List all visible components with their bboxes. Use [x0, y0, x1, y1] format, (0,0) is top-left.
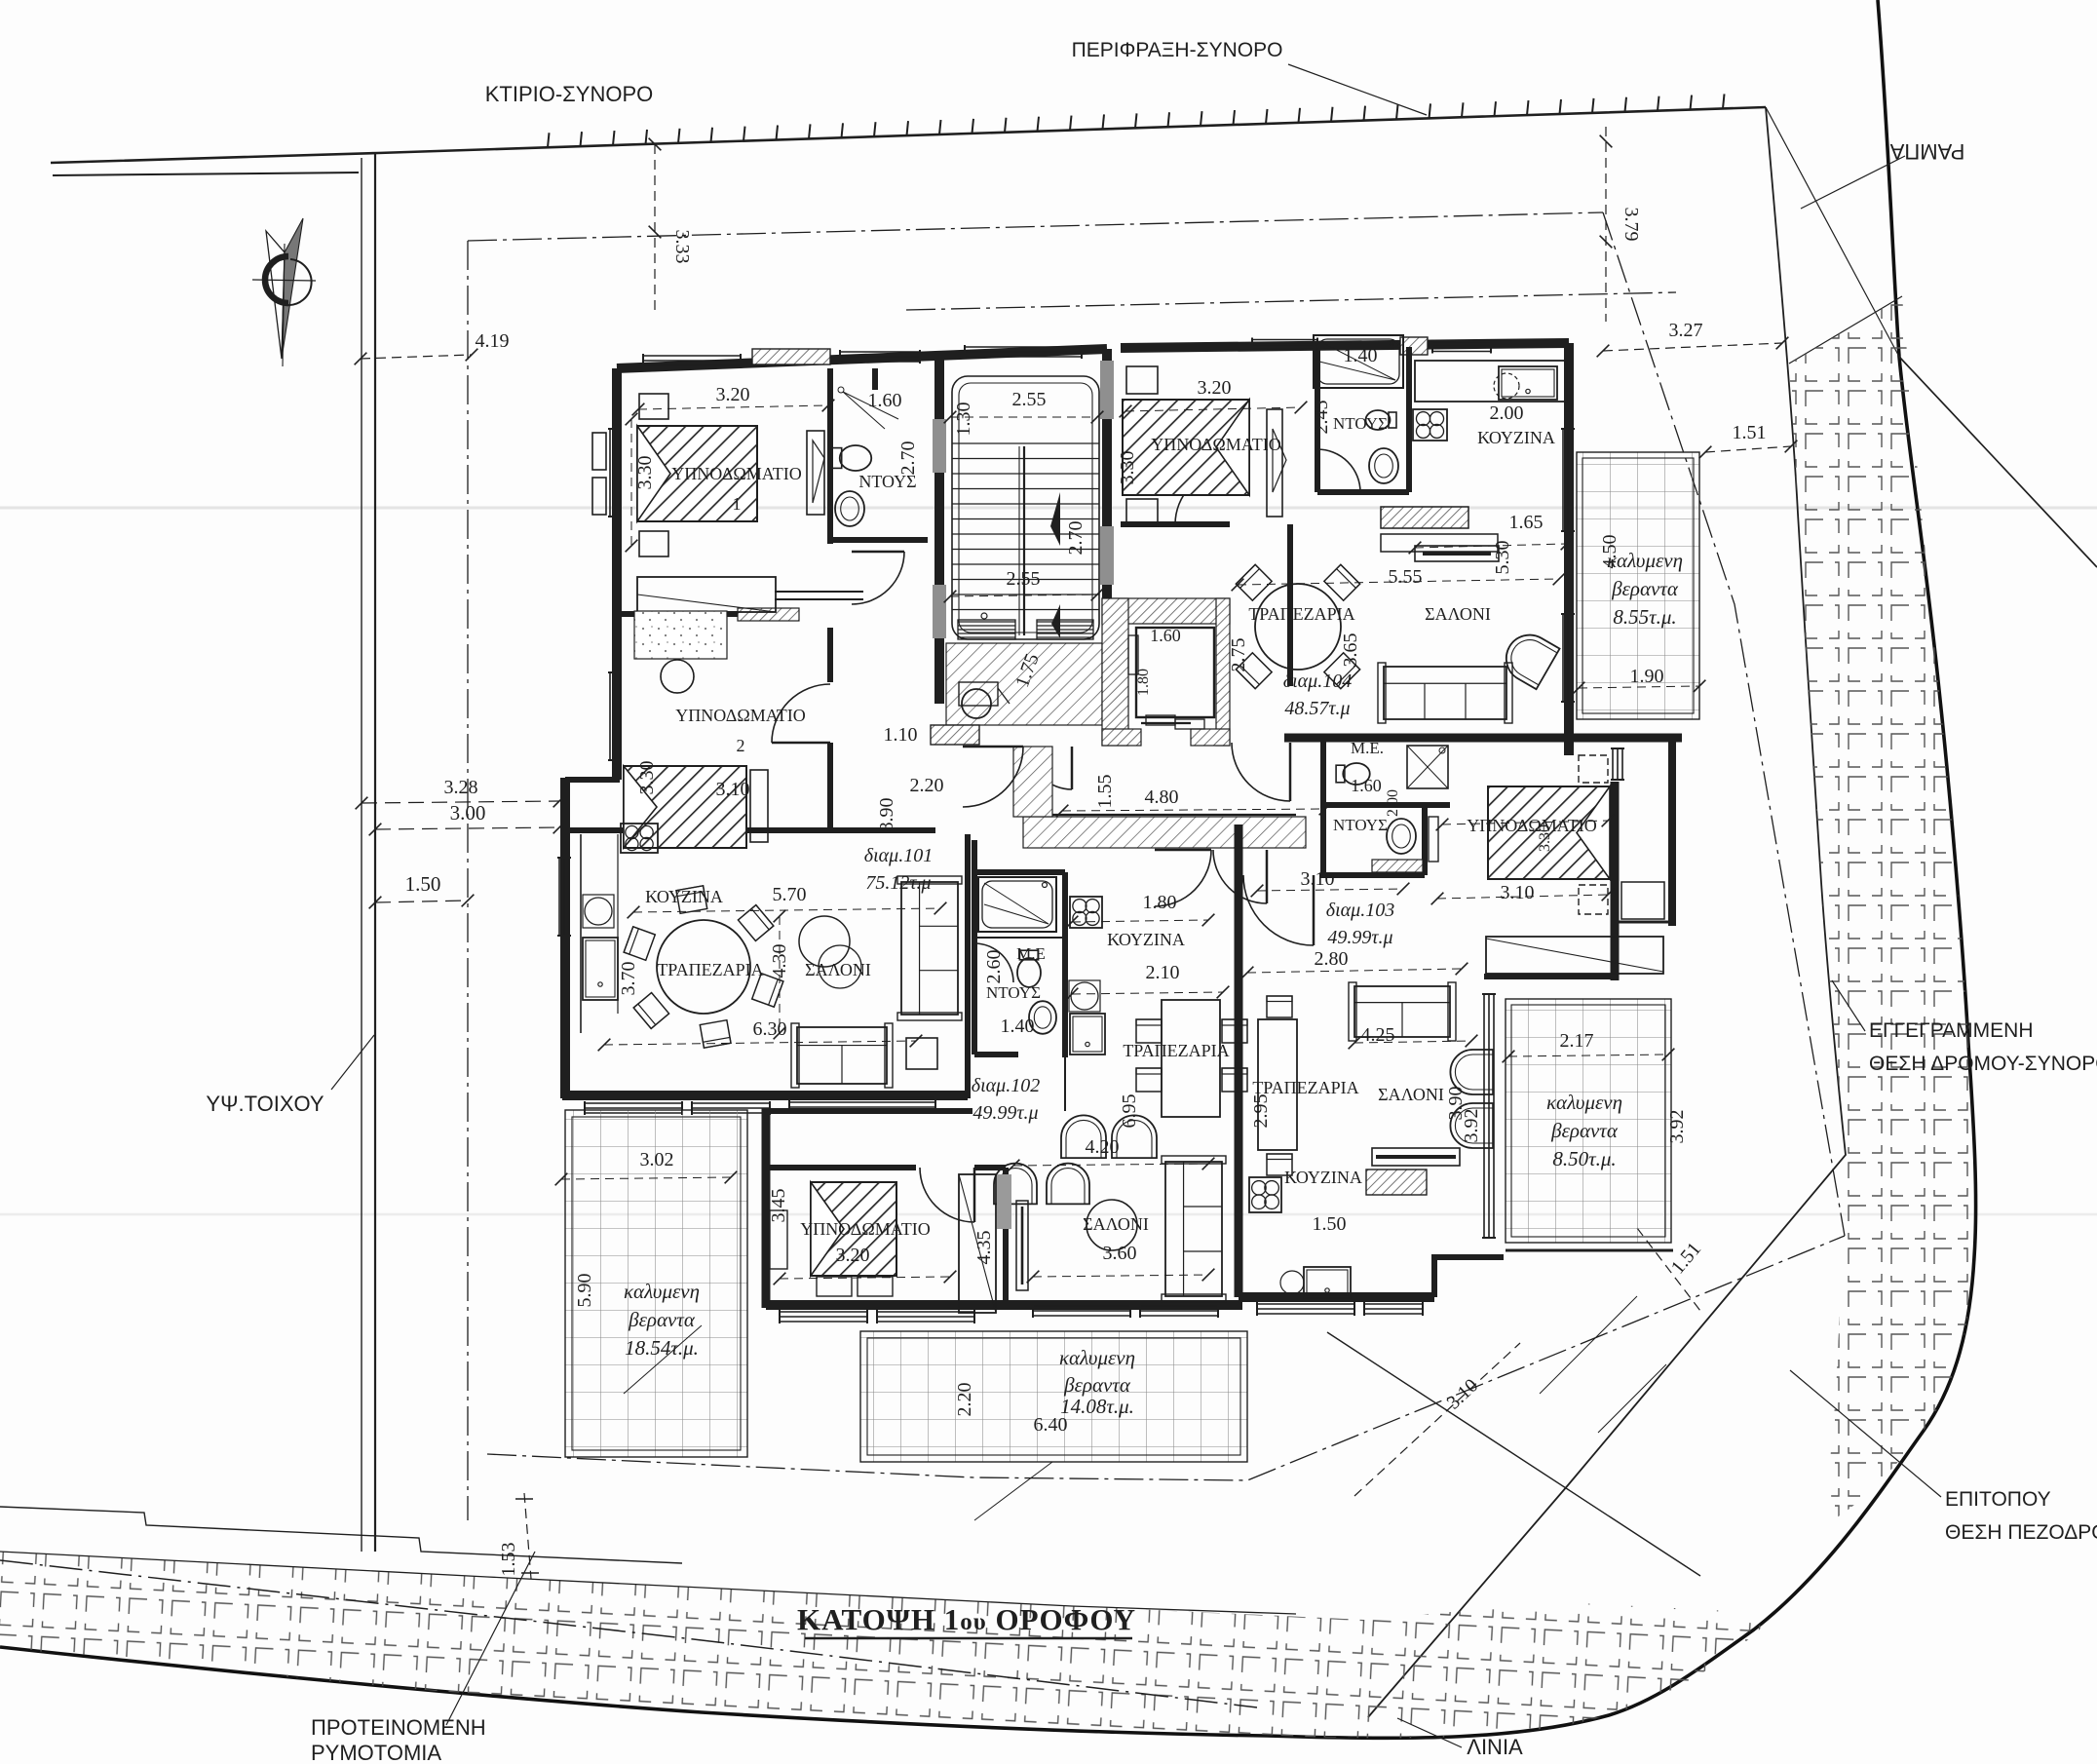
- svg-text:ΥΠΝΟΔΩΜΑΤΙΟ: ΥΠΝΟΔΩΜΑΤΙΟ: [675, 706, 806, 725]
- svg-text:1.80: 1.80: [1135, 669, 1152, 696]
- svg-text:Μ.Ε.: Μ.Ε.: [1351, 739, 1384, 757]
- svg-text:καλυμενη: καλυμενη: [1607, 549, 1683, 572]
- svg-text:3.45: 3.45: [768, 1189, 789, 1223]
- svg-text:75.12τ.μ: 75.12τ.μ: [865, 872, 931, 894]
- svg-text:2.70: 2.70: [897, 441, 919, 476]
- svg-text:βεραντα: βεραντα: [1550, 1119, 1619, 1142]
- svg-text:ΘΕΣΗ ΠΕΖΟΔΡΟ: ΘΕΣΗ ΠΕΖΟΔΡΟ: [1945, 1521, 2097, 1544]
- svg-text:3.20: 3.20: [716, 384, 750, 405]
- svg-text:3.02: 3.02: [640, 1149, 674, 1170]
- svg-text:1.60: 1.60: [1351, 776, 1382, 795]
- svg-text:2.60: 2.60: [983, 950, 1005, 984]
- svg-text:3.00: 3.00: [450, 801, 486, 824]
- svg-text:4.25: 4.25: [1361, 1024, 1395, 1046]
- svg-text:ΚΤΙΡΙΟ-ΣΥΝΟΡΟ: ΚΤΙΡΙΟ-ΣΥΝΟΡΟ: [485, 82, 654, 106]
- svg-text:2: 2: [737, 736, 745, 755]
- svg-text:3.10: 3.10: [716, 779, 750, 800]
- svg-text:ΘΕΣΗ ΔΡΟΜΟΥ-ΣΥΝΟΡΟ: ΘΕΣΗ ΔΡΟΜΟΥ-ΣΥΝΟΡΟ: [1869, 1053, 2097, 1075]
- svg-text:ΛΙΝΙΑ: ΛΙΝΙΑ: [1467, 1735, 1523, 1759]
- svg-text:6.30: 6.30: [753, 1018, 787, 1040]
- svg-text:ΚΟΥΖΙΝΑ: ΚΟΥΖΙΝΑ: [645, 887, 723, 906]
- svg-text:3.92: 3.92: [1666, 1110, 1688, 1144]
- svg-text:ΝΤΟΥΣ: ΝΤΟΥΣ: [986, 983, 1041, 1002]
- svg-text:4.80: 4.80: [1145, 786, 1179, 808]
- svg-text:4.20: 4.20: [1086, 1136, 1120, 1158]
- svg-text:8.50τ.μ.: 8.50τ.μ.: [1552, 1147, 1616, 1170]
- svg-text:2.20: 2.20: [910, 775, 944, 796]
- svg-text:6.40: 6.40: [1034, 1414, 1068, 1436]
- svg-text:3.33: 3.33: [671, 230, 693, 264]
- svg-text:8.55τ.μ.: 8.55τ.μ.: [1613, 605, 1676, 629]
- svg-text:βεραντα: βεραντα: [628, 1308, 696, 1331]
- svg-text:2.00: 2.00: [1385, 789, 1401, 817]
- svg-text:ΕΠΙΤΟΠΟΥ: ΕΠΙΤΟΠΟΥ: [1945, 1488, 2051, 1511]
- svg-text:1.40: 1.40: [1001, 1016, 1035, 1037]
- svg-text:3.30: 3.30: [1117, 451, 1138, 485]
- svg-text:2.95: 2.95: [1250, 1094, 1272, 1129]
- svg-text:5.70: 5.70: [773, 884, 807, 905]
- svg-text:ΥΠΝΟΔΩΜΑΤΙΟ: ΥΠΝΟΔΩΜΑΤΙΟ: [671, 464, 802, 483]
- svg-text:ΠΕΡΙΦΡΑΞΗ-ΣΥΝΟΡΟ: ΠΕΡΙΦΡΑΞΗ-ΣΥΝΟΡΟ: [1072, 39, 1283, 61]
- svg-text:3.92: 3.92: [1461, 1109, 1482, 1143]
- svg-text:ΣΑΛΟΝΙ: ΣΑΛΟΝΙ: [1425, 604, 1491, 624]
- svg-text:4.35: 4.35: [973, 1231, 995, 1265]
- svg-text:ΥΠΝΟΔΩΜΑΤΙΟ: ΥΠΝΟΔΩΜΑΤΙΟ: [1467, 816, 1597, 835]
- svg-text:3.10: 3.10: [1501, 882, 1535, 903]
- svg-text:ΥΠΝΟΔΩΜΑΤΙΟ: ΥΠΝΟΔΩΜΑΤΙΟ: [1151, 435, 1281, 454]
- svg-text:1.60: 1.60: [868, 390, 902, 411]
- svg-text:18.54τ.μ.: 18.54τ.μ.: [625, 1336, 699, 1360]
- svg-text:καλυμενη: καλυμενη: [1059, 1346, 1135, 1369]
- svg-text:καλυμενη: καλυμενη: [1546, 1091, 1622, 1114]
- svg-text:ΝΤΟΥΣ: ΝΤΟΥΣ: [1333, 816, 1388, 834]
- svg-text:1.50: 1.50: [1313, 1213, 1347, 1235]
- svg-text:2.45: 2.45: [1311, 401, 1332, 435]
- svg-text:2.20: 2.20: [954, 1383, 975, 1417]
- svg-text:ΚΟΥΖΙΝΑ: ΚΟΥΖΙΝΑ: [1477, 428, 1555, 447]
- svg-text:2.10: 2.10: [1146, 962, 1180, 983]
- svg-text:14.08τ.μ.: 14.08τ.μ.: [1060, 1395, 1134, 1418]
- svg-text:ΣΑΛΟΝΙ: ΣΑΛΟΝΙ: [1083, 1214, 1149, 1234]
- svg-text:ΠΡΟΤΕΙΝΟΜΕΝΗ: ΠΡΟΤΕΙΝΟΜΕΝΗ: [311, 1715, 486, 1740]
- svg-text:3.27: 3.27: [1669, 320, 1703, 341]
- svg-text:καλυμενη: καλυμενη: [624, 1280, 700, 1303]
- svg-text:2.75: 2.75: [1228, 638, 1249, 672]
- svg-text:1.30: 1.30: [953, 403, 974, 437]
- svg-text:3.79: 3.79: [1620, 208, 1642, 242]
- svg-text:ΣΑΛΟΝΙ: ΣΑΛΟΝΙ: [1378, 1085, 1444, 1104]
- svg-text:2.17: 2.17: [1560, 1030, 1594, 1052]
- svg-text:4.30: 4.30: [769, 944, 790, 978]
- svg-text:3.28: 3.28: [444, 777, 478, 798]
- svg-text:διαμ.101: διαμ.101: [864, 845, 933, 866]
- svg-text:ΥΠΝΟΔΩΜΑΤΙΟ: ΥΠΝΟΔΩΜΑΤΙΟ: [800, 1219, 931, 1239]
- svg-text:2.80: 2.80: [1315, 948, 1349, 970]
- svg-text:8.90: 8.90: [876, 798, 897, 832]
- svg-text:1.10: 1.10: [884, 724, 918, 746]
- svg-text:ΥΨ.ΤΟΙΧΟΥ: ΥΨ.ΤΟΙΧΟΥ: [206, 1092, 324, 1116]
- svg-text:3.10: 3.10: [1301, 868, 1335, 890]
- svg-text:διαμ.104: διαμ.104: [1283, 671, 1352, 692]
- svg-text:ΚΟΥΖΙΝΑ: ΚΟΥΖΙΝΑ: [1107, 930, 1185, 949]
- svg-text:3.60: 3.60: [1103, 1243, 1137, 1264]
- svg-text:βεραντα: βεραντα: [1611, 577, 1679, 600]
- svg-text:1.60: 1.60: [1150, 626, 1181, 645]
- svg-text:2.70: 2.70: [1065, 521, 1087, 556]
- svg-text:2.00: 2.00: [1490, 403, 1524, 424]
- svg-text:2.55: 2.55: [1012, 389, 1047, 410]
- svg-text:6.95: 6.95: [1119, 1094, 1140, 1129]
- svg-text:ΣΑΛΟΝΙ: ΣΑΛΟΝΙ: [805, 960, 871, 979]
- svg-text:ΤΡΑΠΕΖΑΡΙΑ: ΤΡΑΠΕΖΑΡΙΑ: [1248, 604, 1354, 624]
- svg-text:1.51: 1.51: [1733, 422, 1767, 443]
- svg-text:διαμ.103: διαμ.103: [1326, 900, 1394, 921]
- svg-text:1.90: 1.90: [1630, 666, 1664, 687]
- svg-text:ΝΤΟΥΣ: ΝΤΟΥΣ: [1333, 414, 1388, 433]
- svg-text:5.30: 5.30: [1492, 541, 1513, 575]
- svg-text:5.90: 5.90: [574, 1274, 595, 1308]
- svg-text:Μ.Ε: Μ.Ε: [1016, 944, 1046, 963]
- svg-text:1.65: 1.65: [1509, 512, 1544, 533]
- svg-text:2.55: 2.55: [1007, 568, 1041, 590]
- svg-text:48.57τ.μ: 48.57τ.μ: [1284, 698, 1350, 719]
- svg-text:1.40: 1.40: [1344, 345, 1378, 366]
- svg-text:3.30: 3.30: [634, 456, 656, 490]
- svg-text:3.70: 3.70: [618, 962, 639, 996]
- svg-text:ΡΑΜΠΑ: ΡΑΜΠΑ: [1889, 139, 1964, 164]
- svg-text:βεραντα: βεραντα: [1063, 1373, 1131, 1397]
- svg-text:ΕΓΓΕΓΡΑΜΜΕΝΗ: ΕΓΓΕΓΡΑΜΜΕΝΗ: [1869, 1019, 2034, 1042]
- svg-text:1.53: 1.53: [498, 1543, 519, 1577]
- svg-text:3.30: 3.30: [1537, 824, 1553, 852]
- svg-text:1.80: 1.80: [1143, 892, 1177, 913]
- svg-text:ΤΡΑΠΕΖΑΡΙΑ: ΤΡΑΠΕΖΑΡΙΑ: [657, 960, 763, 979]
- svg-text:1: 1: [733, 494, 742, 514]
- svg-text:ΚΟΥΖΙΝΑ: ΚΟΥΖΙΝΑ: [1284, 1168, 1362, 1187]
- svg-text:5.55: 5.55: [1389, 566, 1423, 588]
- svg-text:3.20: 3.20: [836, 1245, 870, 1266]
- svg-text:3.65: 3.65: [1340, 633, 1361, 668]
- svg-text:1.50: 1.50: [405, 872, 441, 896]
- svg-text:49.99τ.μ: 49.99τ.μ: [972, 1102, 1038, 1124]
- svg-text:4.19: 4.19: [476, 330, 510, 352]
- svg-text:ΤΡΑΠΕΖΑΡΙΑ: ΤΡΑΠΕΖΑΡΙΑ: [1123, 1041, 1229, 1060]
- svg-text:3.20: 3.20: [1198, 377, 1232, 399]
- svg-text:1.55: 1.55: [1094, 775, 1116, 809]
- svg-text:3.30: 3.30: [636, 761, 658, 795]
- svg-text:ΡΥΜΟΤΟΜΙΑ: ΡΥΜΟΤΟΜΙΑ: [311, 1741, 441, 1764]
- svg-text:49.99τ.μ: 49.99τ.μ: [1327, 927, 1392, 948]
- svg-text:διαμ.102: διαμ.102: [972, 1075, 1040, 1096]
